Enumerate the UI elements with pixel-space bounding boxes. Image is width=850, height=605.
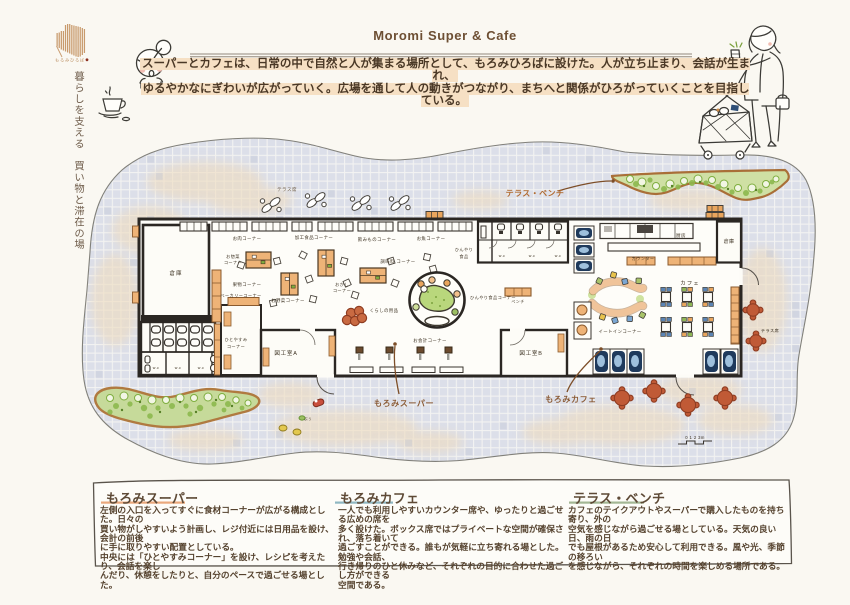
svg-text:もろみひろば: もろみひろば — [55, 57, 85, 64]
svg-text:加工食品コーナー: 加工食品コーナー — [295, 234, 333, 241]
svg-text:w.c: w.c — [529, 254, 535, 258]
svg-text:厨房: 厨房 — [676, 232, 686, 239]
svg-text:お惣菜: お惣菜 — [226, 253, 240, 260]
svg-text:w.c: w.c — [555, 254, 561, 258]
svg-text:もろみスーパー: もろみスーパー — [374, 398, 434, 408]
svg-text:w.c: w.c — [499, 254, 505, 258]
svg-text:テラス・ベンチ: テラス・ベンチ — [506, 189, 565, 198]
svg-text:カウンター: カウンター — [632, 255, 655, 262]
svg-text:ぷぅ: ぷぅ — [304, 416, 312, 421]
svg-text:お肉コーナー: お肉コーナー — [233, 235, 262, 242]
svg-text:倉庫: 倉庫 — [724, 238, 735, 245]
svg-text:果物コーナー: 果物コーナー — [233, 281, 262, 288]
svg-text:お野菜コーナー: お野菜コーナー — [271, 297, 305, 304]
svg-text:飲みものコーナー: 飲みものコーナー — [358, 236, 396, 243]
svg-text:おかし: おかし — [335, 281, 349, 288]
svg-text:調味料 コーナー: 調味料 コーナー — [380, 258, 415, 265]
svg-text:図工室A: 図工室A — [274, 349, 297, 357]
svg-text:食品: 食品 — [459, 253, 468, 260]
svg-text:w.c: w.c — [153, 366, 159, 370]
svg-text:図工室B: 図工室B — [519, 349, 542, 357]
svg-text:テラス席: テラス席 — [277, 186, 297, 193]
svg-text:ひんやり: ひんやり — [455, 246, 473, 253]
svg-text:w.c: w.c — [175, 366, 181, 370]
svg-text:w.c: w.c — [198, 366, 204, 370]
svg-text:0 1 2 3m: 0 1 2 3m — [685, 435, 705, 440]
svg-text:もろみカフェ: もろみカフェ — [545, 395, 597, 404]
svg-text:ひとやすみ: ひとやすみ — [225, 336, 248, 343]
svg-text:お会計コーナー: お会計コーナー — [413, 337, 447, 344]
svg-text:テラス席: テラス席 — [761, 327, 779, 334]
svg-text:お魚コーナー: お魚コーナー — [417, 235, 446, 242]
svg-text:倉庫: 倉庫 — [169, 269, 182, 277]
svg-text:ベンチ: ベンチ — [511, 299, 524, 304]
svg-text:カフェ: カフェ — [680, 280, 700, 287]
